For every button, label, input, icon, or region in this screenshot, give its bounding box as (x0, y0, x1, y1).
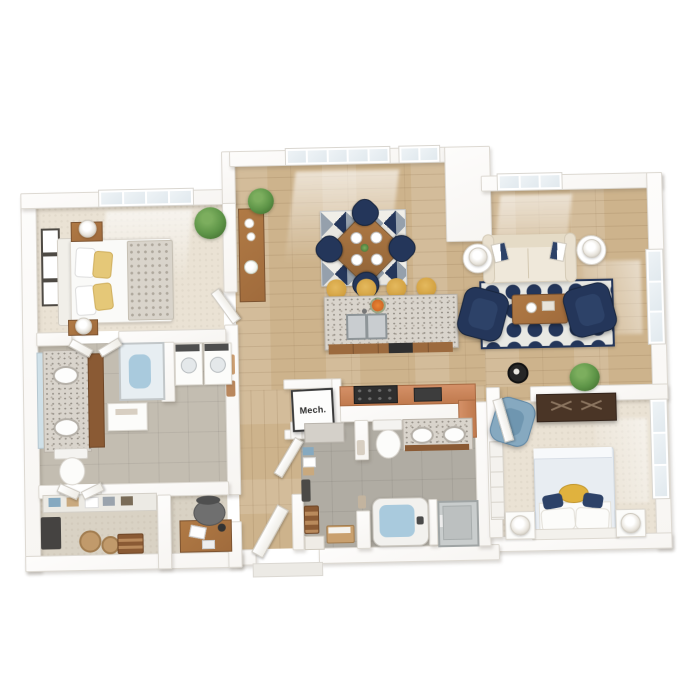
hanging-clothes (303, 457, 316, 467)
master-vanity (42, 349, 92, 452)
wall (157, 494, 172, 569)
round-tray-center (513, 369, 519, 375)
sofa-arm (564, 232, 577, 282)
closet-shelf-unit (304, 422, 345, 443)
apartment-plan: Mech. (0, 0, 700, 700)
wall-step-block (444, 146, 492, 242)
shower-handle (440, 515, 443, 527)
bed-throw-patterned (127, 240, 174, 321)
shower-floor (129, 354, 152, 389)
countertop-appliance (414, 387, 442, 402)
towel (115, 409, 137, 415)
wall (319, 544, 500, 564)
bathtub-water (379, 504, 415, 537)
dresser (536, 393, 617, 423)
hanging-clothes (303, 467, 314, 475)
window-living-top (497, 172, 563, 191)
window-bedroom-2 (649, 398, 670, 499)
floor-mat (41, 517, 62, 550)
wall (36, 332, 72, 347)
pillow-yellow (92, 282, 114, 311)
dryer-controls (204, 344, 228, 352)
blanket-ladder (304, 505, 320, 534)
kitchen-sink (346, 314, 368, 340)
tub-faucet (417, 516, 424, 524)
window-dining-b (398, 145, 440, 164)
entry-threshold (253, 562, 324, 578)
mech-label: Mech. (299, 405, 326, 416)
hamper (304, 536, 324, 551)
shower-tray (442, 505, 472, 540)
window-bedroom-1 (98, 188, 194, 208)
floor-mirror (301, 479, 310, 501)
wall (356, 510, 371, 549)
folded-clothes (103, 497, 115, 506)
bed-top-fold (533, 447, 612, 460)
window-living-right (645, 249, 666, 345)
floor-plan-render: Mech. (0, 0, 700, 700)
blanket-ladder (117, 533, 143, 554)
wall (25, 551, 242, 572)
bench-cushion (328, 527, 350, 534)
folded-clothes (48, 498, 60, 507)
wall (291, 494, 304, 551)
dishwasher (389, 343, 413, 354)
faucet (362, 309, 367, 314)
pillow-yellow (92, 251, 113, 279)
towel (357, 440, 365, 455)
bath-cabinet (107, 402, 148, 431)
window-dining-a (285, 146, 391, 166)
papers (202, 540, 215, 549)
closet-shelving (489, 441, 505, 520)
vanity-cabinet (88, 353, 105, 448)
headboard (531, 527, 620, 540)
towel (358, 495, 366, 508)
kitchen-sink (366, 313, 388, 339)
washer-controls (175, 344, 199, 352)
tabletop-book (542, 301, 555, 311)
range (353, 385, 397, 404)
folded-clothes (121, 496, 133, 505)
coffee-table (512, 293, 569, 324)
hanging-clothes (303, 447, 314, 455)
